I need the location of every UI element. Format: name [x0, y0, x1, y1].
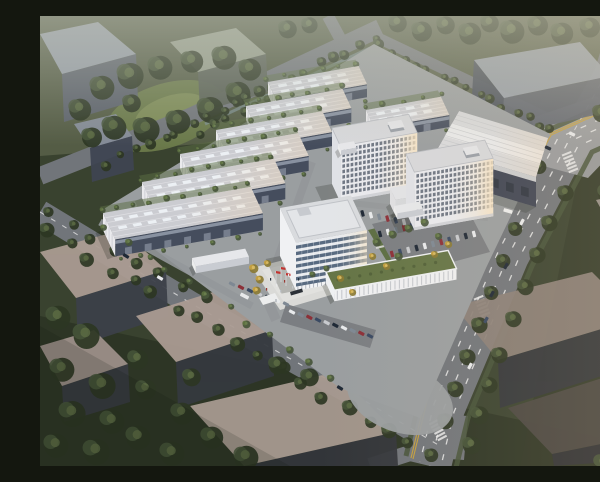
tree-canopy [230, 305, 232, 307]
tree-canopy [307, 360, 310, 363]
door [204, 233, 211, 241]
tree-canopy [157, 175, 159, 177]
person [284, 280, 285, 283]
tree-canopy [255, 352, 259, 356]
tree-canopy [110, 270, 114, 274]
tree-canopy [156, 269, 160, 273]
person [298, 278, 299, 281]
door [164, 240, 171, 248]
tree-canopy [240, 160, 242, 162]
tree-canopy [204, 292, 207, 295]
warm-glow-right [320, 16, 600, 466]
tree-canopy [135, 146, 138, 149]
door [262, 195, 269, 203]
tree-canopy [191, 168, 193, 170]
tree-canopy [134, 260, 138, 264]
tree-canopy [44, 225, 50, 231]
tree-canopy [101, 208, 103, 210]
tree-canopy [259, 233, 260, 234]
door [125, 246, 132, 254]
tree-canopy [140, 254, 142, 256]
tree-canopy [80, 328, 90, 338]
tree-canopy [246, 182, 248, 184]
tree-canopy [187, 372, 194, 379]
tree-canopy [147, 288, 152, 293]
tree-canopy [311, 273, 313, 275]
tree-canopy [72, 222, 76, 226]
tree-canopy [133, 353, 141, 361]
tree-canopy [237, 236, 239, 238]
aerial-render-canvas [40, 16, 600, 466]
tree-canopy [140, 179, 142, 181]
tree-canopy [212, 241, 214, 243]
tree-canopy [115, 206, 117, 208]
person [266, 288, 267, 291]
tree-canopy [221, 162, 223, 164]
door [224, 229, 231, 237]
tree-canopy [188, 279, 190, 281]
tree-canopy [163, 268, 165, 270]
tree-canopy [102, 225, 104, 227]
person [280, 290, 281, 293]
tree-canopy [255, 288, 258, 291]
tree-canopy [179, 150, 181, 152]
door [145, 243, 152, 251]
tree-canopy [288, 348, 291, 351]
tree-canopy [119, 152, 122, 155]
tree-canopy [163, 249, 165, 251]
tree-canopy [148, 202, 150, 204]
tree-canopy [305, 372, 312, 379]
tree-canopy [127, 240, 130, 243]
tree-canopy [258, 277, 261, 280]
tree-canopy [83, 255, 88, 260]
tree-canopy [199, 193, 201, 195]
person [288, 274, 289, 277]
tree-canopy [134, 277, 138, 281]
tree-canopy [207, 165, 209, 167]
person [276, 284, 277, 287]
tree-canopy [104, 163, 108, 167]
tree-canopy [273, 360, 280, 367]
tree-canopy [70, 240, 74, 244]
person [270, 278, 271, 281]
tree-canopy [255, 157, 257, 159]
person [292, 286, 293, 289]
architectural-rendering-figure: Aerial dusk rendering of an industrial b… [40, 16, 600, 466]
door [184, 236, 191, 244]
tree-canopy [182, 195, 184, 197]
tree-canopy [303, 173, 305, 175]
tree-canopy [120, 258, 121, 259]
tree-canopy [53, 310, 62, 319]
tree-canopy [252, 266, 255, 269]
tree-canopy [181, 284, 185, 288]
tree-canopy [46, 209, 50, 213]
tree-canopy [176, 307, 180, 311]
tree-canopy [186, 245, 187, 246]
tree-canopy [87, 236, 91, 240]
tree-canopy [279, 202, 281, 204]
tree-canopy [269, 333, 271, 335]
tree-canopy [245, 322, 248, 325]
tree-canopy [149, 255, 151, 257]
tree-canopy [216, 326, 221, 331]
tree-canopy [132, 203, 134, 205]
tree-canopy [234, 340, 240, 346]
tree-canopy [174, 173, 176, 175]
tree-canopy [234, 187, 236, 189]
tree-canopy [197, 147, 199, 149]
tree-canopy [214, 187, 216, 189]
tree-canopy [194, 313, 198, 317]
tree-canopy [270, 156, 272, 158]
tree-canopy [266, 261, 269, 264]
tree-canopy [165, 196, 168, 199]
